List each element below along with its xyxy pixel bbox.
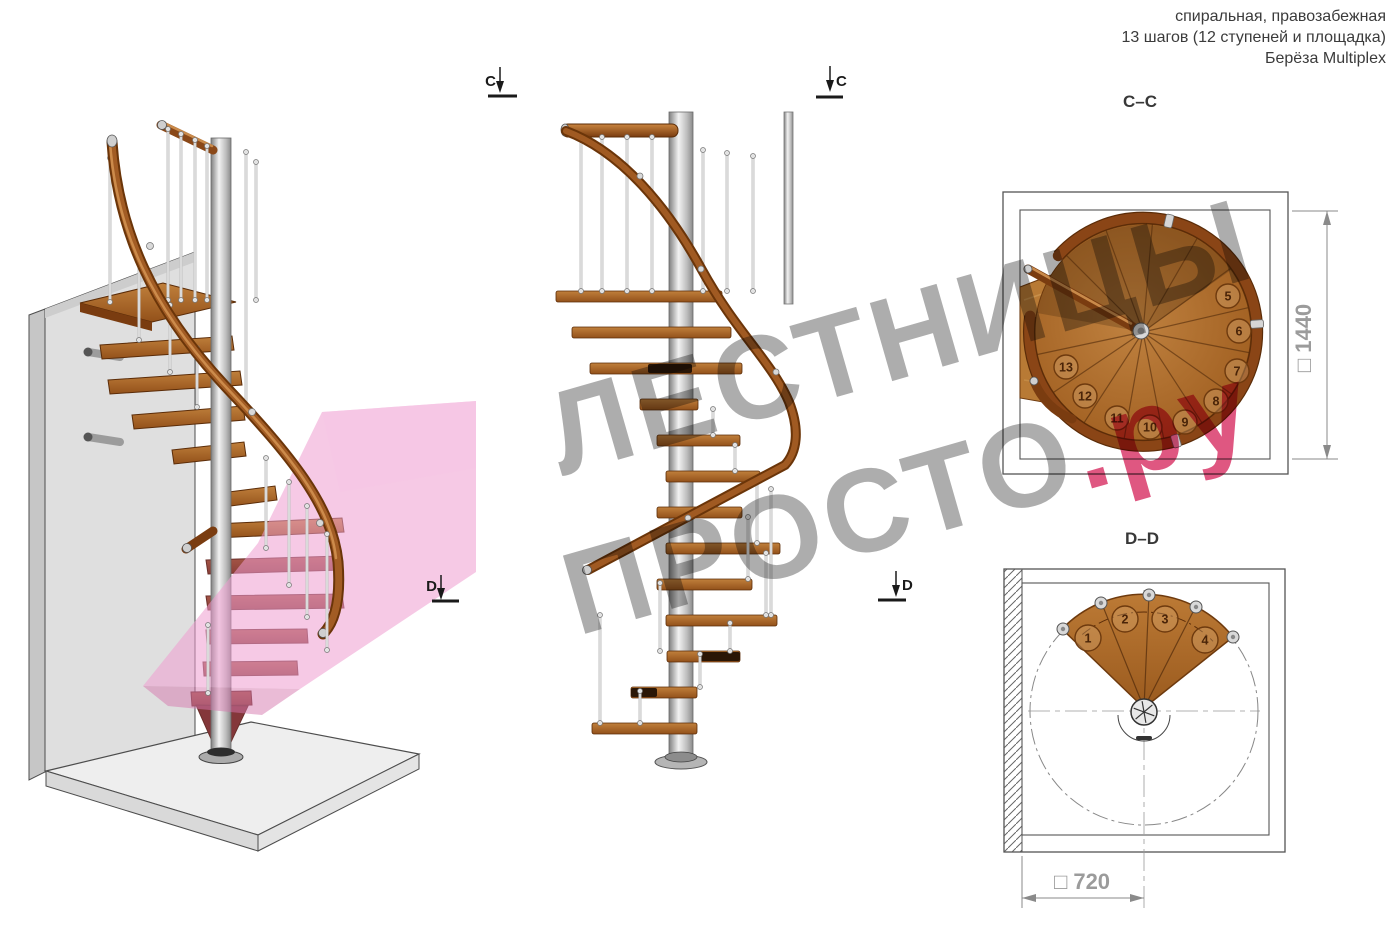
dd-dimension: □ 720 <box>1022 856 1144 908</box>
steps-elevation <box>556 291 780 734</box>
svg-text:12: 12 <box>1078 390 1092 404</box>
view-elevation: C C D <box>485 66 913 769</box>
svg-text:7: 7 <box>1234 365 1241 379</box>
drawing-header: спиральная, правозабежная 13 шагов (12 с… <box>1122 6 1387 69</box>
step-number-badge: 8 <box>1204 389 1228 413</box>
step-number-badge: 3 <box>1152 606 1178 632</box>
step-number-badge: 11 <box>1105 406 1129 430</box>
dd-center-column <box>1118 699 1170 741</box>
step-edge <box>640 399 698 410</box>
dim-arrow-icon <box>1130 894 1144 902</box>
step-edge <box>592 723 697 734</box>
plan-view-cc: C–C 567 <box>1003 92 1338 474</box>
section-arrow-icon <box>826 80 834 92</box>
svg-text:C: C <box>836 73 847 90</box>
svg-text:5: 5 <box>1225 290 1232 304</box>
svg-text:8: 8 <box>1213 395 1220 409</box>
plan-view-dd: D–D 1234 <box>1004 529 1285 908</box>
cc-center-pole-cap <box>1138 328 1145 335</box>
dim-arrow-icon <box>1323 445 1331 459</box>
step-number-badge: 5 <box>1216 284 1240 308</box>
svg-text:2: 2 <box>1122 613 1129 627</box>
header-type: спиральная, правозабежная <box>1122 6 1387 27</box>
dd-dimension-label: □ 720 <box>1054 869 1110 894</box>
plan-cc-title: C–C <box>1123 92 1157 111</box>
svg-text:10: 10 <box>1143 421 1157 435</box>
section-arrow-icon <box>892 585 900 597</box>
header-material: Берёза Multiplex <box>1122 48 1387 69</box>
cc-dimension: □ 1440 <box>1291 211 1338 459</box>
svg-text:3: 3 <box>1162 613 1169 627</box>
step-number-badge: 13 <box>1054 355 1078 379</box>
svg-text:13: 13 <box>1059 361 1073 375</box>
svg-text:11: 11 <box>1110 412 1123 426</box>
view-3d-staircase: D <box>29 121 476 852</box>
svg-text:C: C <box>485 73 496 90</box>
step-edge <box>572 327 731 338</box>
svg-text:9: 9 <box>1182 416 1189 430</box>
newel-post <box>784 112 793 304</box>
step-number-badge: 9 <box>1173 410 1197 434</box>
step-number-badge: 2 <box>1112 606 1138 632</box>
staircase-drawing: D <box>0 0 1400 940</box>
step-edge <box>666 615 777 626</box>
cc-dimension-label: □ 1440 <box>1291 304 1316 372</box>
svg-text:D: D <box>902 577 913 594</box>
svg-text:D: D <box>426 578 437 595</box>
step-number-badge: 12 <box>1073 384 1097 408</box>
plan-dd-title: D–D <box>1125 529 1159 548</box>
step-number-badge: 7 <box>1225 359 1249 383</box>
step-number-badge: 1 <box>1075 625 1101 651</box>
dim-arrow-icon <box>1323 211 1331 225</box>
step-edge <box>657 435 740 446</box>
section-arrow-icon <box>496 81 504 93</box>
section-marker-c-left: C <box>485 67 517 96</box>
rail-connector <box>1250 320 1264 329</box>
svg-text:6: 6 <box>1236 325 1243 339</box>
svg-text:1: 1 <box>1085 632 1092 646</box>
section-marker-c-right: C <box>816 66 847 97</box>
section-marker-d-right: D <box>878 571 913 600</box>
drawing-page: D <box>0 0 1400 940</box>
step-number-badge: 4 <box>1192 627 1218 653</box>
svg-text:4: 4 <box>1202 634 1209 648</box>
step-edge <box>657 579 752 590</box>
step-edge <box>666 543 780 554</box>
step-number-badge: 10 <box>1138 415 1162 439</box>
step-number-badge: 6 <box>1227 319 1251 343</box>
dd-wall-hatch <box>1004 569 1022 852</box>
dim-arrow-icon <box>1022 894 1036 902</box>
header-steps: 13 шагов (12 ступеней и площадка) <box>1122 27 1387 48</box>
